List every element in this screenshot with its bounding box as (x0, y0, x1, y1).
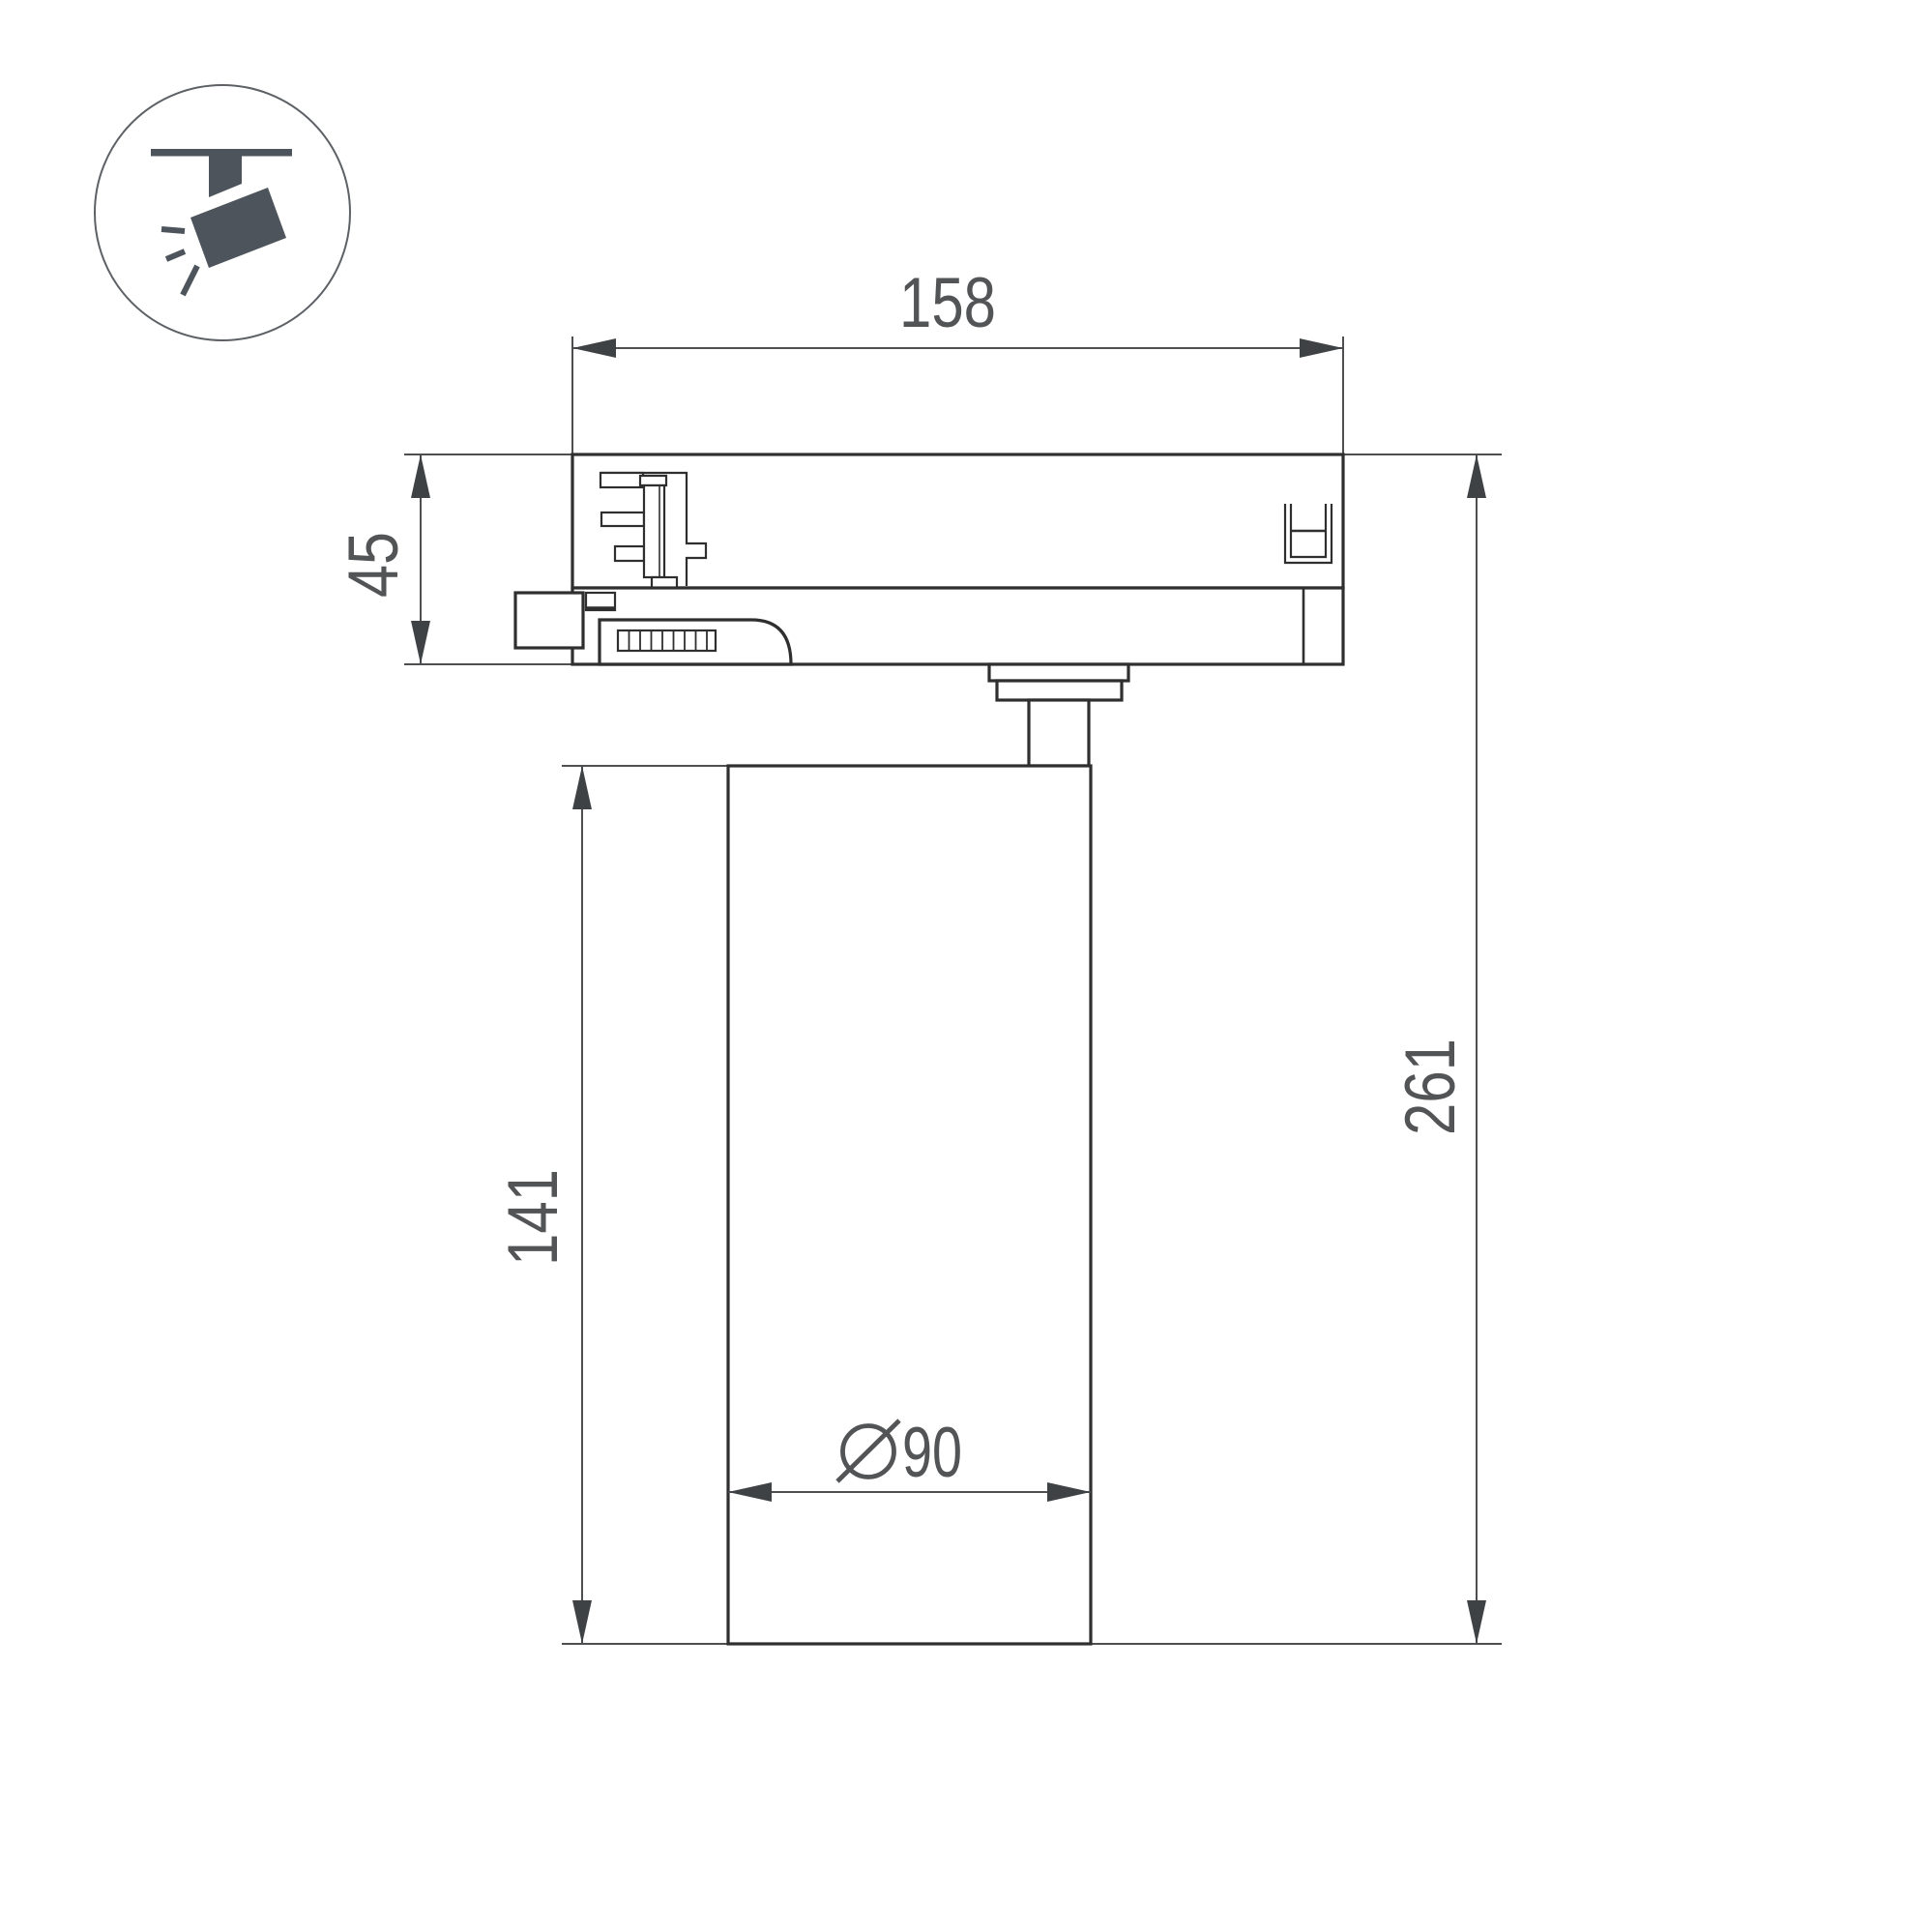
svg-text:90: 90 (902, 1414, 962, 1492)
svg-text:45: 45 (335, 532, 413, 598)
svg-text:261: 261 (1391, 1039, 1470, 1135)
svg-text:141: 141 (494, 1169, 572, 1266)
svg-text:158: 158 (899, 264, 996, 342)
